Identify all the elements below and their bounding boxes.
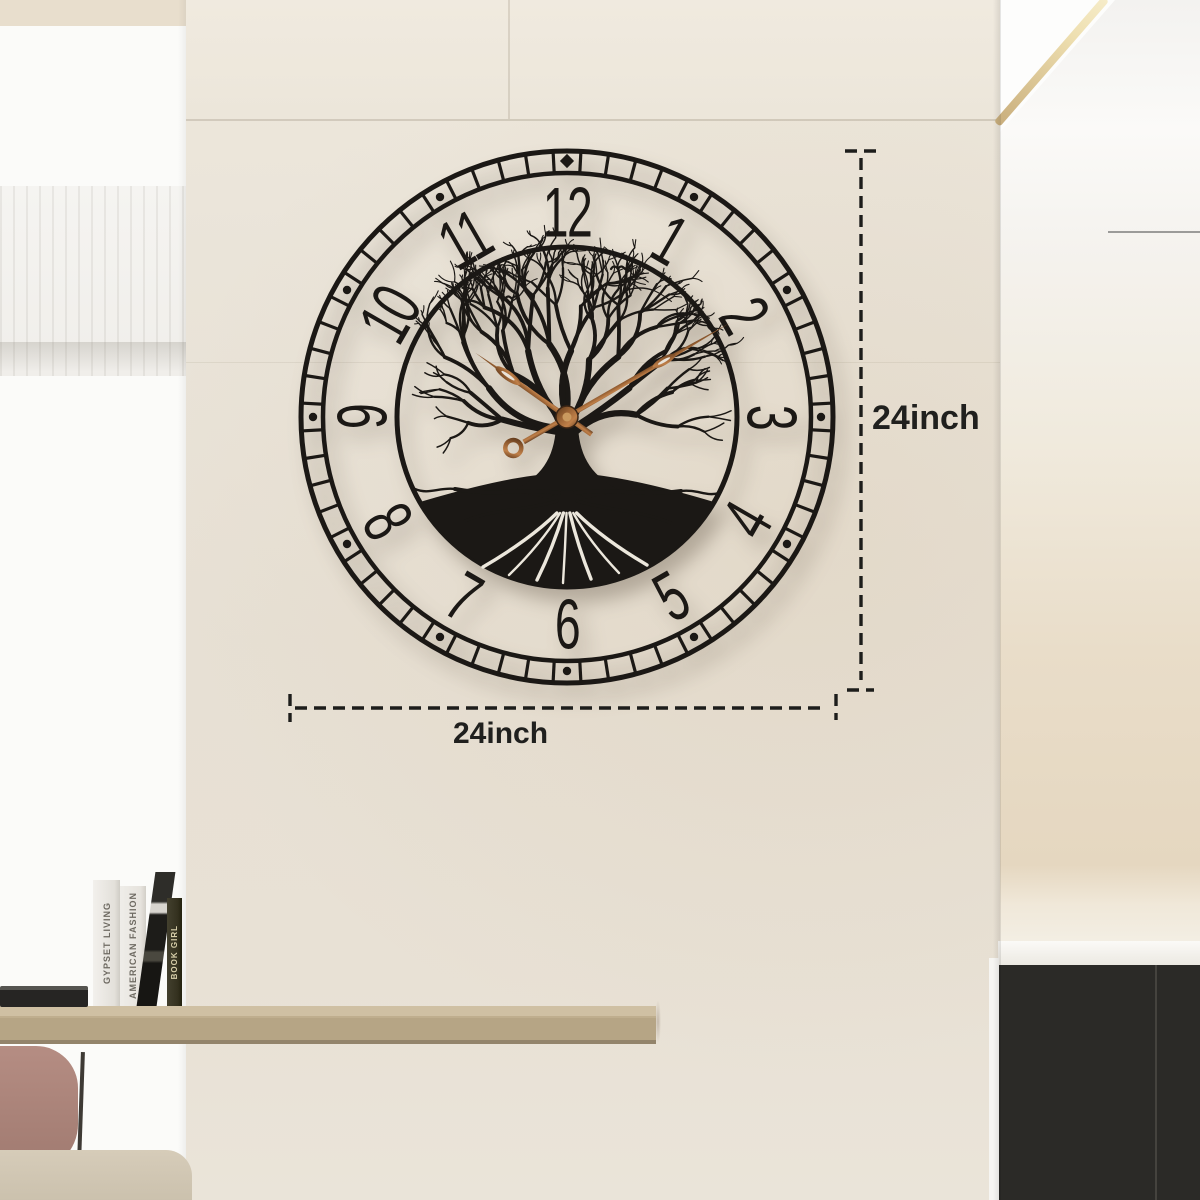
cabinet-door-seam xyxy=(1155,965,1157,1200)
book-spine: GYPSET LIVING xyxy=(93,880,120,1006)
dark-cabinet xyxy=(999,965,1200,1200)
book-title: BOOK GIRL xyxy=(170,925,179,979)
wall-seam xyxy=(186,119,1000,121)
height-dimension-label: 24inch xyxy=(872,399,980,438)
svg-text:6: 6 xyxy=(555,585,579,664)
width-dimension-label: 24inch xyxy=(453,717,548,751)
svg-text:9: 9 xyxy=(323,405,402,429)
wood-counter xyxy=(0,1006,656,1044)
wall-corner xyxy=(993,0,1001,1200)
svg-text:2: 2 xyxy=(704,284,785,345)
svg-text:4: 4 xyxy=(706,490,787,551)
book-spine: BOOK GIRL xyxy=(167,898,182,1006)
wall-seam xyxy=(508,0,510,119)
tree-of-life-wall-clock: 123456789101112 xyxy=(292,142,842,692)
room-scene: GYPSET LIVING AMERICAN FASHION BOOK GIRL… xyxy=(0,0,1200,1200)
svg-text:3: 3 xyxy=(732,405,811,429)
counter-shadow xyxy=(655,1000,805,1120)
svg-text:7: 7 xyxy=(433,556,494,637)
wall-upper-band xyxy=(186,0,1000,119)
curtain-hem xyxy=(0,342,186,372)
svg-text:12: 12 xyxy=(543,173,591,252)
svg-text:1: 1 xyxy=(639,199,700,280)
book-title: GYPSET LIVING xyxy=(102,902,112,984)
svg-text:8: 8 xyxy=(347,490,428,551)
ceiling-recess-line xyxy=(1108,231,1200,233)
book-title: AMERICAN FASHION xyxy=(128,892,138,999)
tablet-on-counter xyxy=(0,986,88,1007)
far-countertop xyxy=(998,941,1200,965)
bench-cushion xyxy=(0,1150,192,1200)
svg-text:5: 5 xyxy=(640,556,701,637)
window-valance xyxy=(0,0,186,26)
